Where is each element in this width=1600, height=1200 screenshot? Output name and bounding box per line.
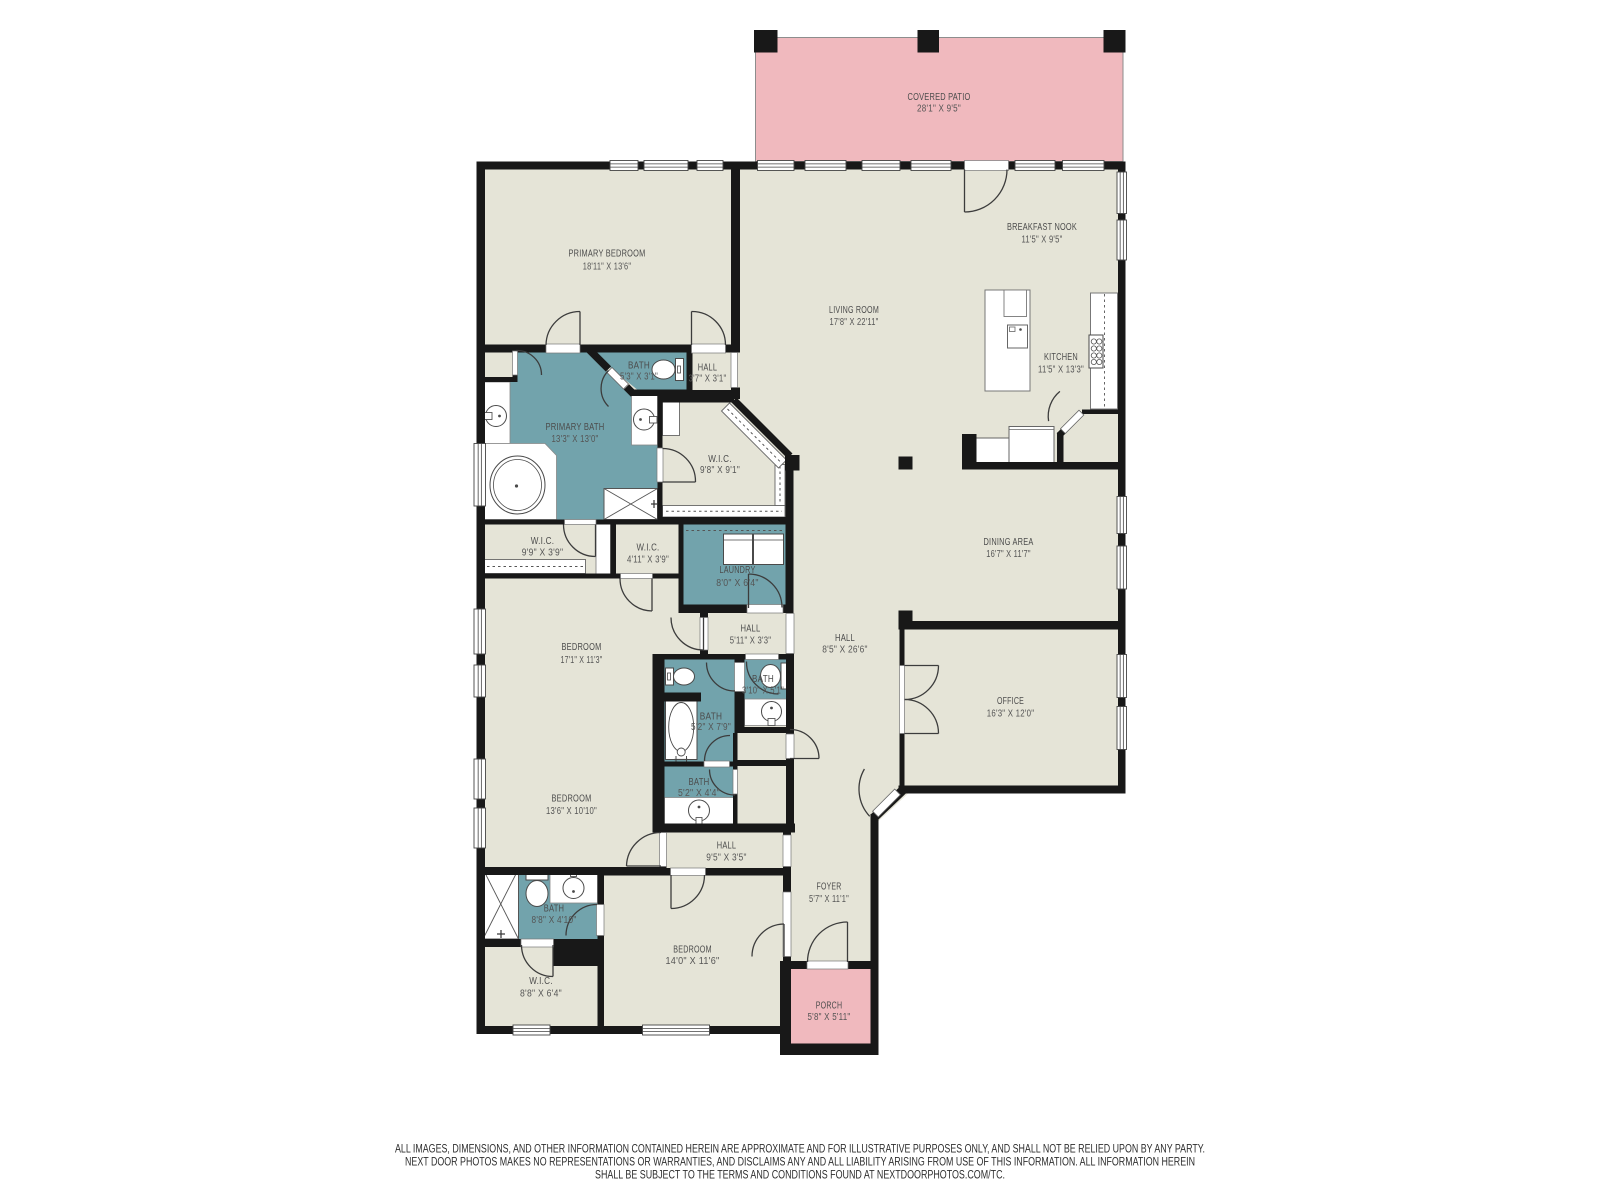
svg-text:NEXT DOOR PHOTOS MAKES NO REPR: NEXT DOOR PHOTOS MAKES NO REPRESENTATION… [405,1157,1195,1169]
svg-text:W.I.C.: W.I.C. [529,976,553,987]
svg-text:5'11" X 3'3": 5'11" X 3'3" [730,636,772,647]
svg-text:11'5" X 9'5": 11'5" X 9'5" [1022,235,1063,246]
svg-text:BATH: BATH [628,361,650,372]
svg-text:W.I.C.: W.I.C. [708,454,732,465]
svg-text:BREAKFAST NOOK: BREAKFAST NOOK [1007,222,1077,233]
svg-text:BEDROOM: BEDROOM [552,794,592,805]
svg-text:8'5" X 26'6": 8'5" X 26'6" [822,645,868,656]
svg-text:5'3" X 3'1": 5'3" X 3'1" [620,372,658,383]
svg-text:5'8" X 5'11": 5'8" X 5'11" [808,1012,851,1023]
svg-text:COVERED PATIO: COVERED PATIO [908,92,971,103]
svg-text:3'10" X 5'1": 3'10" X 5'1" [742,686,784,697]
svg-text:PRIMARY BATH: PRIMARY BATH [546,422,605,433]
svg-text:8'8" X 6'4": 8'8" X 6'4" [520,989,562,1000]
svg-text:4'11" X 3'9": 4'11" X 3'9" [627,555,669,566]
svg-text:ALL IMAGES, DIMENSIONS, AND OT: ALL IMAGES, DIMENSIONS, AND OTHER INFORM… [395,1144,1205,1156]
svg-text:11'5" X 13'3": 11'5" X 13'3" [1038,364,1084,375]
svg-text:BATH: BATH [544,904,565,915]
svg-text:FOYER: FOYER [817,882,842,893]
svg-text:13'6" X 10'10": 13'6" X 10'10" [546,806,597,817]
svg-text:BEDROOM: BEDROOM [673,945,712,956]
svg-text:W.I.C.: W.I.C. [531,536,555,547]
svg-text:16'3" X 12'0": 16'3" X 12'0" [987,709,1035,720]
svg-text:16'7" X 11'7": 16'7" X 11'7" [986,549,1031,560]
svg-text:13'3" X 13'0": 13'3" X 13'0" [552,434,599,445]
svg-text:OFFICE: OFFICE [997,696,1024,707]
svg-text:LIVING ROOM: LIVING ROOM [829,305,879,316]
svg-text:BEDROOM: BEDROOM [562,642,602,653]
svg-text:PORCH: PORCH [816,1001,843,1012]
svg-text:17'8" X 22'11": 17'8" X 22'11" [830,317,879,328]
svg-text:18'11" X 13'6": 18'11" X 13'6" [583,262,632,273]
svg-text:HALL: HALL [717,841,737,852]
svg-text:17'1" X 11'3": 17'1" X 11'3" [561,655,603,666]
svg-text:HALL: HALL [698,363,718,374]
svg-text:HALL: HALL [835,633,855,644]
svg-text:28'1" X 9'5": 28'1" X 9'5" [917,104,961,115]
svg-text:HALL: HALL [741,624,761,635]
svg-text:8'8" X 4'10": 8'8" X 4'10" [532,915,577,926]
svg-text:5'2" X 4'4": 5'2" X 4'4" [678,788,720,799]
svg-text:BATH: BATH [689,777,710,788]
svg-text:DINING AREA: DINING AREA [984,537,1034,548]
svg-text:5'2" X 7'9": 5'2" X 7'9" [691,722,731,733]
svg-text:3'7" X 3'1": 3'7" X 3'1" [689,374,727,385]
svg-text:W.I.C.: W.I.C. [637,543,660,554]
svg-text:BATH: BATH [752,674,774,685]
svg-text:8'0" X 6'4": 8'0" X 6'4" [716,578,759,589]
svg-text:LAUNDRY: LAUNDRY [720,565,756,576]
svg-text:5'7" X 11'1": 5'7" X 11'1" [809,894,849,905]
svg-text:SHALL BE SUBJECT TO THE TERMS: SHALL BE SUBJECT TO THE TERMS AND CONDIT… [595,1170,1005,1182]
svg-text:KITCHEN: KITCHEN [1044,352,1078,363]
svg-text:9'9" X 3'9": 9'9" X 3'9" [522,548,564,559]
svg-text:9'5" X 3'5": 9'5" X 3'5" [706,853,747,864]
svg-text:9'8" X 9'1": 9'8" X 9'1" [700,465,740,476]
svg-text:14'0" X 11'6": 14'0" X 11'6" [666,956,720,967]
svg-text:PRIMARY BEDROOM: PRIMARY BEDROOM [569,249,646,260]
